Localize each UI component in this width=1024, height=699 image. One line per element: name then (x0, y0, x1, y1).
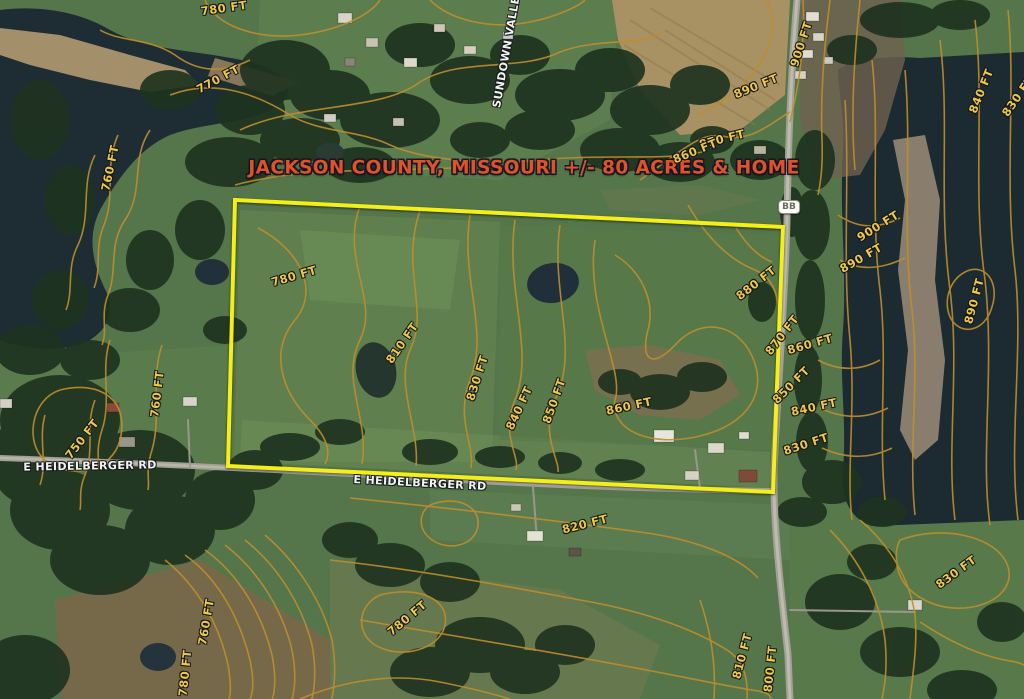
satellite-basemap (0, 0, 1024, 699)
aerial-map: JACKSON COUNTY, MISSOURI +/- 80 ACRES & … (0, 0, 1024, 699)
